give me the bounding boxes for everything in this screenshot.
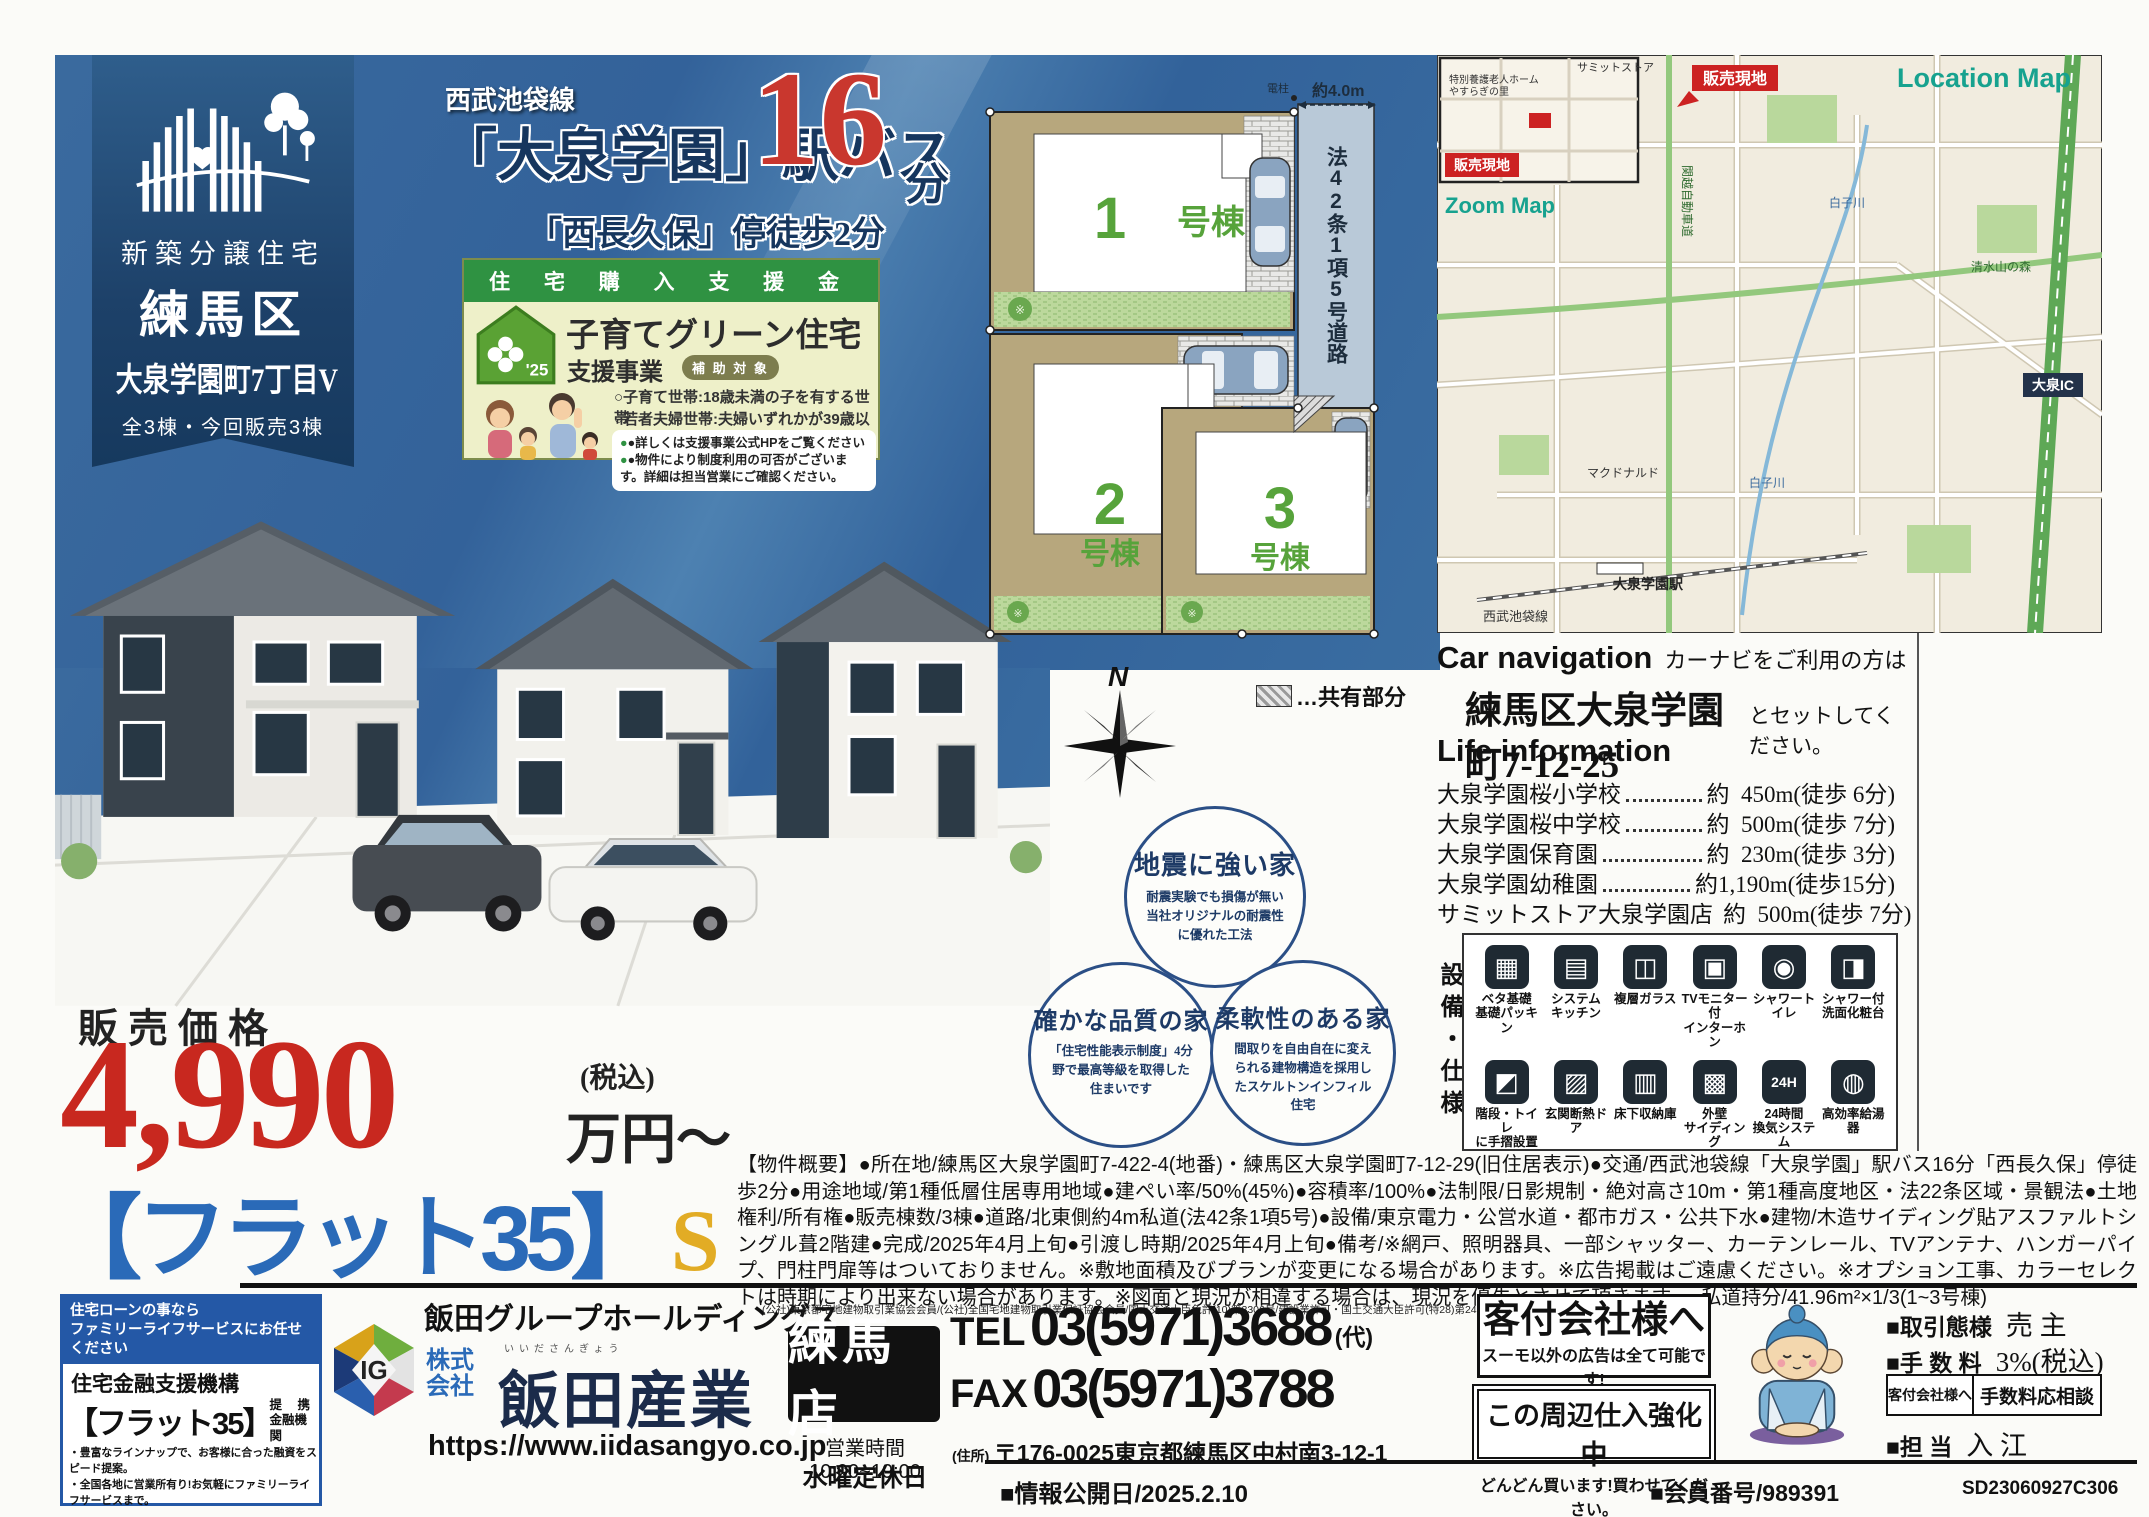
branch-box: 練馬店 [788, 1326, 940, 1422]
car-nav-lead: カーナビをご利用の方は [1664, 643, 1906, 675]
house-rendering [55, 462, 1050, 1007]
insulated-door-icon: ▨ [1554, 1060, 1598, 1104]
published-date: ■情報公開日/2025.2.10 [1000, 1474, 1248, 1509]
property-ward: 練馬区 [92, 275, 354, 347]
svg-text:※: ※ [1015, 303, 1025, 317]
bus-stop: 「西長久保」停徒歩2分 [528, 206, 885, 255]
flat35-loan-box: 住宅ローンの事なら ファミリーライフサービスにお任せください 住宅金融支援機構 … [60, 1294, 322, 1506]
water-heater-icon: ◍ [1831, 1060, 1875, 1104]
location-map: 特別養護老人ホーム やすらぎの里 販売現地 Zoom Map 販売現地 Loca… [1437, 55, 2102, 633]
equip-handrail: ◩階段・トイレに手摺設置 [1474, 1060, 1540, 1150]
nursing-home-label2: やすらぎの里 [1449, 85, 1509, 98]
minutes-unit: 分 [905, 148, 949, 212]
lot3-suffix: 号棟 [1250, 542, 1311, 575]
loanbox-bullet1: ・豊富なラインナップで、お客様に合った融資をスピード提案。 [69, 1444, 319, 1476]
equip-shower-toilet: ◉シャワートイレ [1751, 945, 1817, 1050]
subsidy-target-label: 補 助 対 象 [682, 355, 779, 380]
shrub [61, 843, 97, 879]
siding-icon: ▩ [1693, 1060, 1737, 1104]
road-width-label: 約4.0m [1312, 81, 1364, 100]
subsidy-subtitle: 支援事業 [567, 352, 663, 387]
feature-flex: 柔軟性のある家 間取りを自由自在に変えられる建物構造を採用したスケルトンインフィ… [1210, 960, 1396, 1146]
feature-quality-title: 確かな品質の家 [1031, 1001, 1211, 1036]
manager-row: ■担 当 入 江 [1886, 1424, 2027, 1463]
life-item: サミットストア大泉学園店約 500m(徒歩 7分) [1437, 899, 1895, 929]
equip-water-heater: ◍高効率給湯器 [1820, 1060, 1886, 1150]
road-label: 法42条1項5号道路 [1325, 145, 1349, 365]
hatch-swatch [1256, 685, 1292, 707]
agent-line: スーモ以外の広告は全て可能です! [1480, 1342, 1708, 1390]
fee-label: ■手 数 料 [1886, 1344, 1982, 1378]
shrub [1010, 841, 1042, 873]
corp-url: https://www.iidasangyo.co.jp [428, 1430, 827, 1463]
real-estate-flyer: 新築分譲住宅 練馬区 大泉学園町7丁目V 全3棟・今回販売3棟 西武池袋線 「大… [0, 0, 2149, 1517]
tel-number: 03(5971)3688 [1030, 1297, 1330, 1357]
loanbox-header1: 住宅ローンの事なら [70, 1302, 312, 1321]
life-information: Life information 大泉学園桜小学校約 450m(徒歩 6分) 大… [1437, 733, 1895, 929]
ad-code: SD23060927C306 [1962, 1478, 2118, 1500]
site-flag-inset: 販売現地 [1454, 157, 1510, 173]
subsidy-header: 住 宅 購 入 支 援 金 [464, 260, 878, 302]
agent-notice-box: 客付会社様へ スーモ以外の広告は全て可能です! [1477, 1294, 1711, 1378]
kanetsu-label: 関越自動車道 [1680, 165, 1694, 237]
subsidy-note-2: ●物件により制度利用の可否がございます。詳細は担当営業にご確認ください。 [620, 453, 847, 484]
agent-title: 客付会社様へ [1480, 1299, 1708, 1342]
equip-kitchen: ▤システムキッチン [1543, 945, 1609, 1050]
utility-pole-label: 電柱 [1267, 81, 1289, 95]
zoom-map-label: Zoom Map [1445, 193, 1555, 218]
loanbox-phone: 0120-068-035 [109, 1511, 309, 1517]
river-label-2: 白子川 [1749, 475, 1785, 490]
nursing-home-label: 特別養護老人ホーム [1449, 73, 1539, 86]
compass-rose: N [1050, 660, 1190, 810]
equip-foundation: ▦ベタ基礎基礎パッキン [1474, 945, 1540, 1050]
kitchen-icon: ▤ [1554, 945, 1598, 989]
property-category: 新築分譲住宅 [92, 232, 354, 271]
flat35-s: S [671, 1193, 720, 1290]
feature-quality-desc: 「住宅性能表示制度」4分野で最高等級を取得した住まいです [1031, 1036, 1211, 1098]
lot1-number: 1 [1094, 186, 1126, 251]
flat35-text: 【フラット35】 [50, 1188, 656, 1290]
rail-label: 西武池袋線 [1483, 609, 1548, 624]
fax-number: 03(5971)3788 [1032, 1359, 1332, 1419]
subsidy-notes: ●●詳しくは支援事業公式HPをご覧ください ●●物件により制度利用の可否がござい… [612, 430, 876, 491]
life-info-title: Life information [1437, 733, 1895, 769]
floor-storage-icon: ▥ [1623, 1060, 1667, 1104]
fax-label: FAX [950, 1372, 1028, 1416]
loanbox-header2: ファミリーライフサービスにお任せください [70, 1321, 312, 1359]
mascot-illustration [1744, 1296, 1850, 1448]
flat35-s-logo: 【フラット35】 S [50, 1164, 720, 1297]
tel-suffix: (代) [1335, 1324, 1373, 1350]
equip-ventilation: 24H24時間換気システム [1751, 1060, 1817, 1150]
subsidy-note-1: ●詳しくは支援事業公式HPをご覧ください [628, 436, 865, 450]
legend-text: …共有部分 [1296, 680, 1406, 712]
subsidy-year-badge: '25 [526, 360, 549, 379]
park-label: 清水山の森 [1971, 259, 2031, 274]
tel-label: TEL [950, 1310, 1026, 1354]
site-plan: 法42条1項5号道路 電柱 約4.0m ※ 1 号棟 [982, 76, 1402, 666]
property-name: 大泉学園町7丁目V [116, 353, 331, 401]
green-house-icon: '25 [474, 304, 558, 386]
loanbox-tie2: 金融機関 [269, 1413, 319, 1444]
agent-fee-cell-right: 手数料応相談 [1974, 1376, 2100, 1414]
column-divider [1917, 633, 1919, 1151]
price-unit: 万円〜 [566, 1094, 731, 1174]
manager-value: 入 江 [1966, 1424, 2027, 1463]
equip-intercom: ▣TVモニター付インターホン [1682, 945, 1748, 1050]
svg-text:販売現地: 販売現地 [1703, 69, 1767, 88]
equip-storage: ▥床下収納庫 [1612, 1060, 1678, 1150]
corp-prefix: 株式会社 [426, 1348, 474, 1400]
loanbox-bullet2: ・全国各地に営業所有り!お気軽にファミリーライフサービスまで。 [69, 1476, 319, 1508]
equip-door: ▨玄関断熱ドア [1543, 1060, 1609, 1150]
ic-label: 大泉IC [2032, 377, 2074, 393]
house-1 [70, 521, 455, 816]
agent-fee-table: 客付会社様へ 手数料応相談 [1886, 1374, 2102, 1416]
lot2-suffix: 号棟 [1080, 538, 1141, 571]
title-ribbon: 新築分譲住宅 練馬区 大泉学園町7丁目V 全3棟・今回販売3棟 [92, 55, 354, 467]
house-3 [759, 562, 1012, 838]
deal-type-label: ■取引態様 [1886, 1308, 1992, 1342]
tel-row: TEL 03(5971)3688 (代) [950, 1296, 1373, 1358]
feature-quake-title: 地震に強い家 [1127, 845, 1303, 882]
address-label: (住所) [952, 1448, 989, 1464]
double-glass-icon: ◫ [1623, 945, 1667, 989]
gate-heart-tree-logo [128, 71, 318, 221]
car-top-view [1250, 158, 1290, 266]
family-illustration [470, 388, 610, 460]
river-label-1: 白子川 [1829, 195, 1865, 210]
subsidy-box: 住 宅 購 入 支 援 金 '25 子育てグリーン住宅 支援事業 補 助 対 象… [462, 258, 880, 460]
car-nav-title: Car navigation [1437, 640, 1652, 676]
deal-type-row: ■取引態様 売 主 [1886, 1304, 2067, 1343]
ig-logo: IG [330, 1322, 418, 1418]
station-marker [1597, 563, 1643, 574]
svg-text:※: ※ [1187, 608, 1196, 620]
buying-box: この周辺仕入強化中 どんどん買います!買わせてください。 [1472, 1384, 1716, 1464]
svg-text:※: ※ [1013, 608, 1022, 620]
equip-glass: ◫複層ガラス [1612, 945, 1678, 1050]
manager-label: ■担 当 [1886, 1428, 1952, 1462]
loanbox-tie1: 提 携 [269, 1398, 319, 1414]
lot1-suffix: 号棟 [1177, 204, 1246, 242]
zoom-map-inset: 特別養護老人ホーム やすらぎの里 販売現地 [1440, 58, 1638, 182]
feature-quake: 地震に強い家 耐震実験でも損傷が無い当社オリジナルの耐震性に優れた工法 [1124, 806, 1306, 988]
property-outline: 【物件概要】●所在地/練馬区大泉学園町7-422-4(地番)・練馬区大泉学園町7… [737, 1152, 2137, 1282]
house-2 [475, 579, 753, 835]
lot3-number: 3 [1264, 476, 1296, 541]
mcdonalds-label: マクドナルド [1587, 466, 1659, 480]
deal-type-value: 売 主 [2006, 1304, 2067, 1343]
shower-toilet-icon: ◉ [1762, 945, 1806, 989]
branch-closed: 水曜定休日 [775, 1458, 955, 1494]
agent-fee-cell-left: 客付会社様へ [1888, 1376, 1974, 1414]
lot-3: ※ 3 号棟 [1162, 408, 1374, 634]
member-number: ■会員番号/989391 [1650, 1474, 1839, 1508]
footer-rule-bottom [985, 1460, 2137, 1464]
foundation-icon: ▦ [1485, 945, 1529, 989]
ventilation-24h-icon: 24H [1762, 1060, 1806, 1104]
feature-quake-desc: 耐震実験でも損傷が無い当社オリジナルの耐震性に優れた工法 [1127, 882, 1303, 944]
property-units: 全3棟・今回販売3棟 [92, 411, 354, 440]
fax-row: FAX 03(5971)3788 [950, 1358, 1333, 1420]
lot2-number: 2 [1094, 472, 1126, 537]
bus-minutes: 16 [752, 52, 887, 187]
lot-1: ※ 1 号棟 [990, 112, 1294, 330]
store-label: サミットストア [1577, 61, 1654, 74]
handrail-icon: ◩ [1485, 1060, 1529, 1104]
tv-intercom-icon: ▣ [1693, 945, 1737, 989]
feature-flex-desc: 間取りを自由自在に変えられる建物構造を採用したスケルトンインフィル住宅 [1213, 1034, 1393, 1115]
loanbox-product: 【フラット35】 [67, 1398, 269, 1443]
equipment-box: ▦ベタ基礎基礎パッキン ▤システムキッチン ◫複層ガラス ▣TVモニター付インタ… [1462, 933, 1898, 1151]
price-amount: 4,990 [60, 1008, 396, 1182]
loanbox-org: 住宅金融支援機構 [71, 1368, 319, 1398]
subsidy-title: 子育てグリーン住宅 [566, 308, 861, 356]
shower-vanity-icon: ◨ [1831, 945, 1875, 989]
shared-area-legend: …共有部分 [1256, 680, 1406, 712]
corp-name-logo: 飯田産業 [498, 1350, 754, 1440]
feature-quality: 確かな品質の家 「住宅性能表示制度」4分野で最高等級を取得した住まいです [1028, 962, 1214, 1148]
equip-vanity: ◨シャワー付洗面化粧台 [1820, 945, 1886, 1050]
price-tax-note: (税込) [580, 1056, 655, 1096]
svg-text:IG: IG [360, 1355, 387, 1385]
location-map-label: Location Map [1897, 63, 2071, 93]
station-label: 大泉学園駅 [1613, 576, 1684, 592]
equip-siding: ▩外壁サイディング [1682, 1060, 1748, 1150]
feature-flex-title: 柔軟性のある家 [1213, 999, 1393, 1034]
